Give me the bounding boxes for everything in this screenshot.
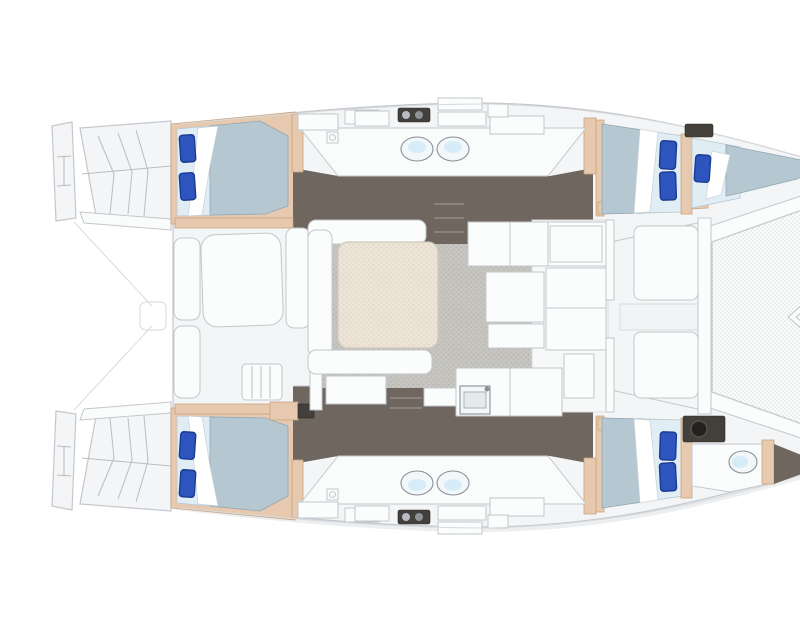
steps-well [388,388,424,418]
fwd-bench [634,332,698,398]
cockpit-seat [174,238,200,320]
bow-vanity [685,124,713,137]
cockpit-table [200,233,283,328]
wc-wall [762,440,774,484]
floor-plan-canvas [40,16,800,616]
faucet [485,387,490,392]
cockpit-locker [242,364,282,400]
fwd-walkthrough [620,304,698,330]
galley-cabinet [550,226,602,262]
galley-counter-side [546,268,606,350]
saloon-table [338,242,438,348]
toilet-bowl [732,456,748,468]
pillow [694,155,711,183]
catamaran-floor-plan [40,16,800,616]
galley-sink-bowl [464,392,486,408]
steps-well [432,188,466,244]
companionway-steps-starboard [388,388,424,418]
galley-island-low [488,324,544,348]
companionway-steps-port [432,188,466,244]
dinghy-davits [74,222,166,410]
settee-side [308,230,332,356]
fwd-crossbeam [698,218,711,414]
stern-platform-port [52,121,171,230]
wc-sink [691,421,707,437]
saloon-fwd-wall [606,338,614,412]
galley-island [486,272,544,322]
cockpit-seat [174,326,200,398]
trampoline-mesh [712,210,800,424]
saloon-fwd-wall [606,220,614,300]
fridge [564,354,594,398]
gunwale-trim [175,218,293,228]
stern-platform-starboard [52,402,171,511]
cockpit-bench [286,228,310,328]
wc-floor [692,444,768,492]
aft-galley-module [270,402,298,420]
settee-aft [308,350,432,374]
sideboard [326,376,386,404]
fwd-bench [634,226,698,300]
